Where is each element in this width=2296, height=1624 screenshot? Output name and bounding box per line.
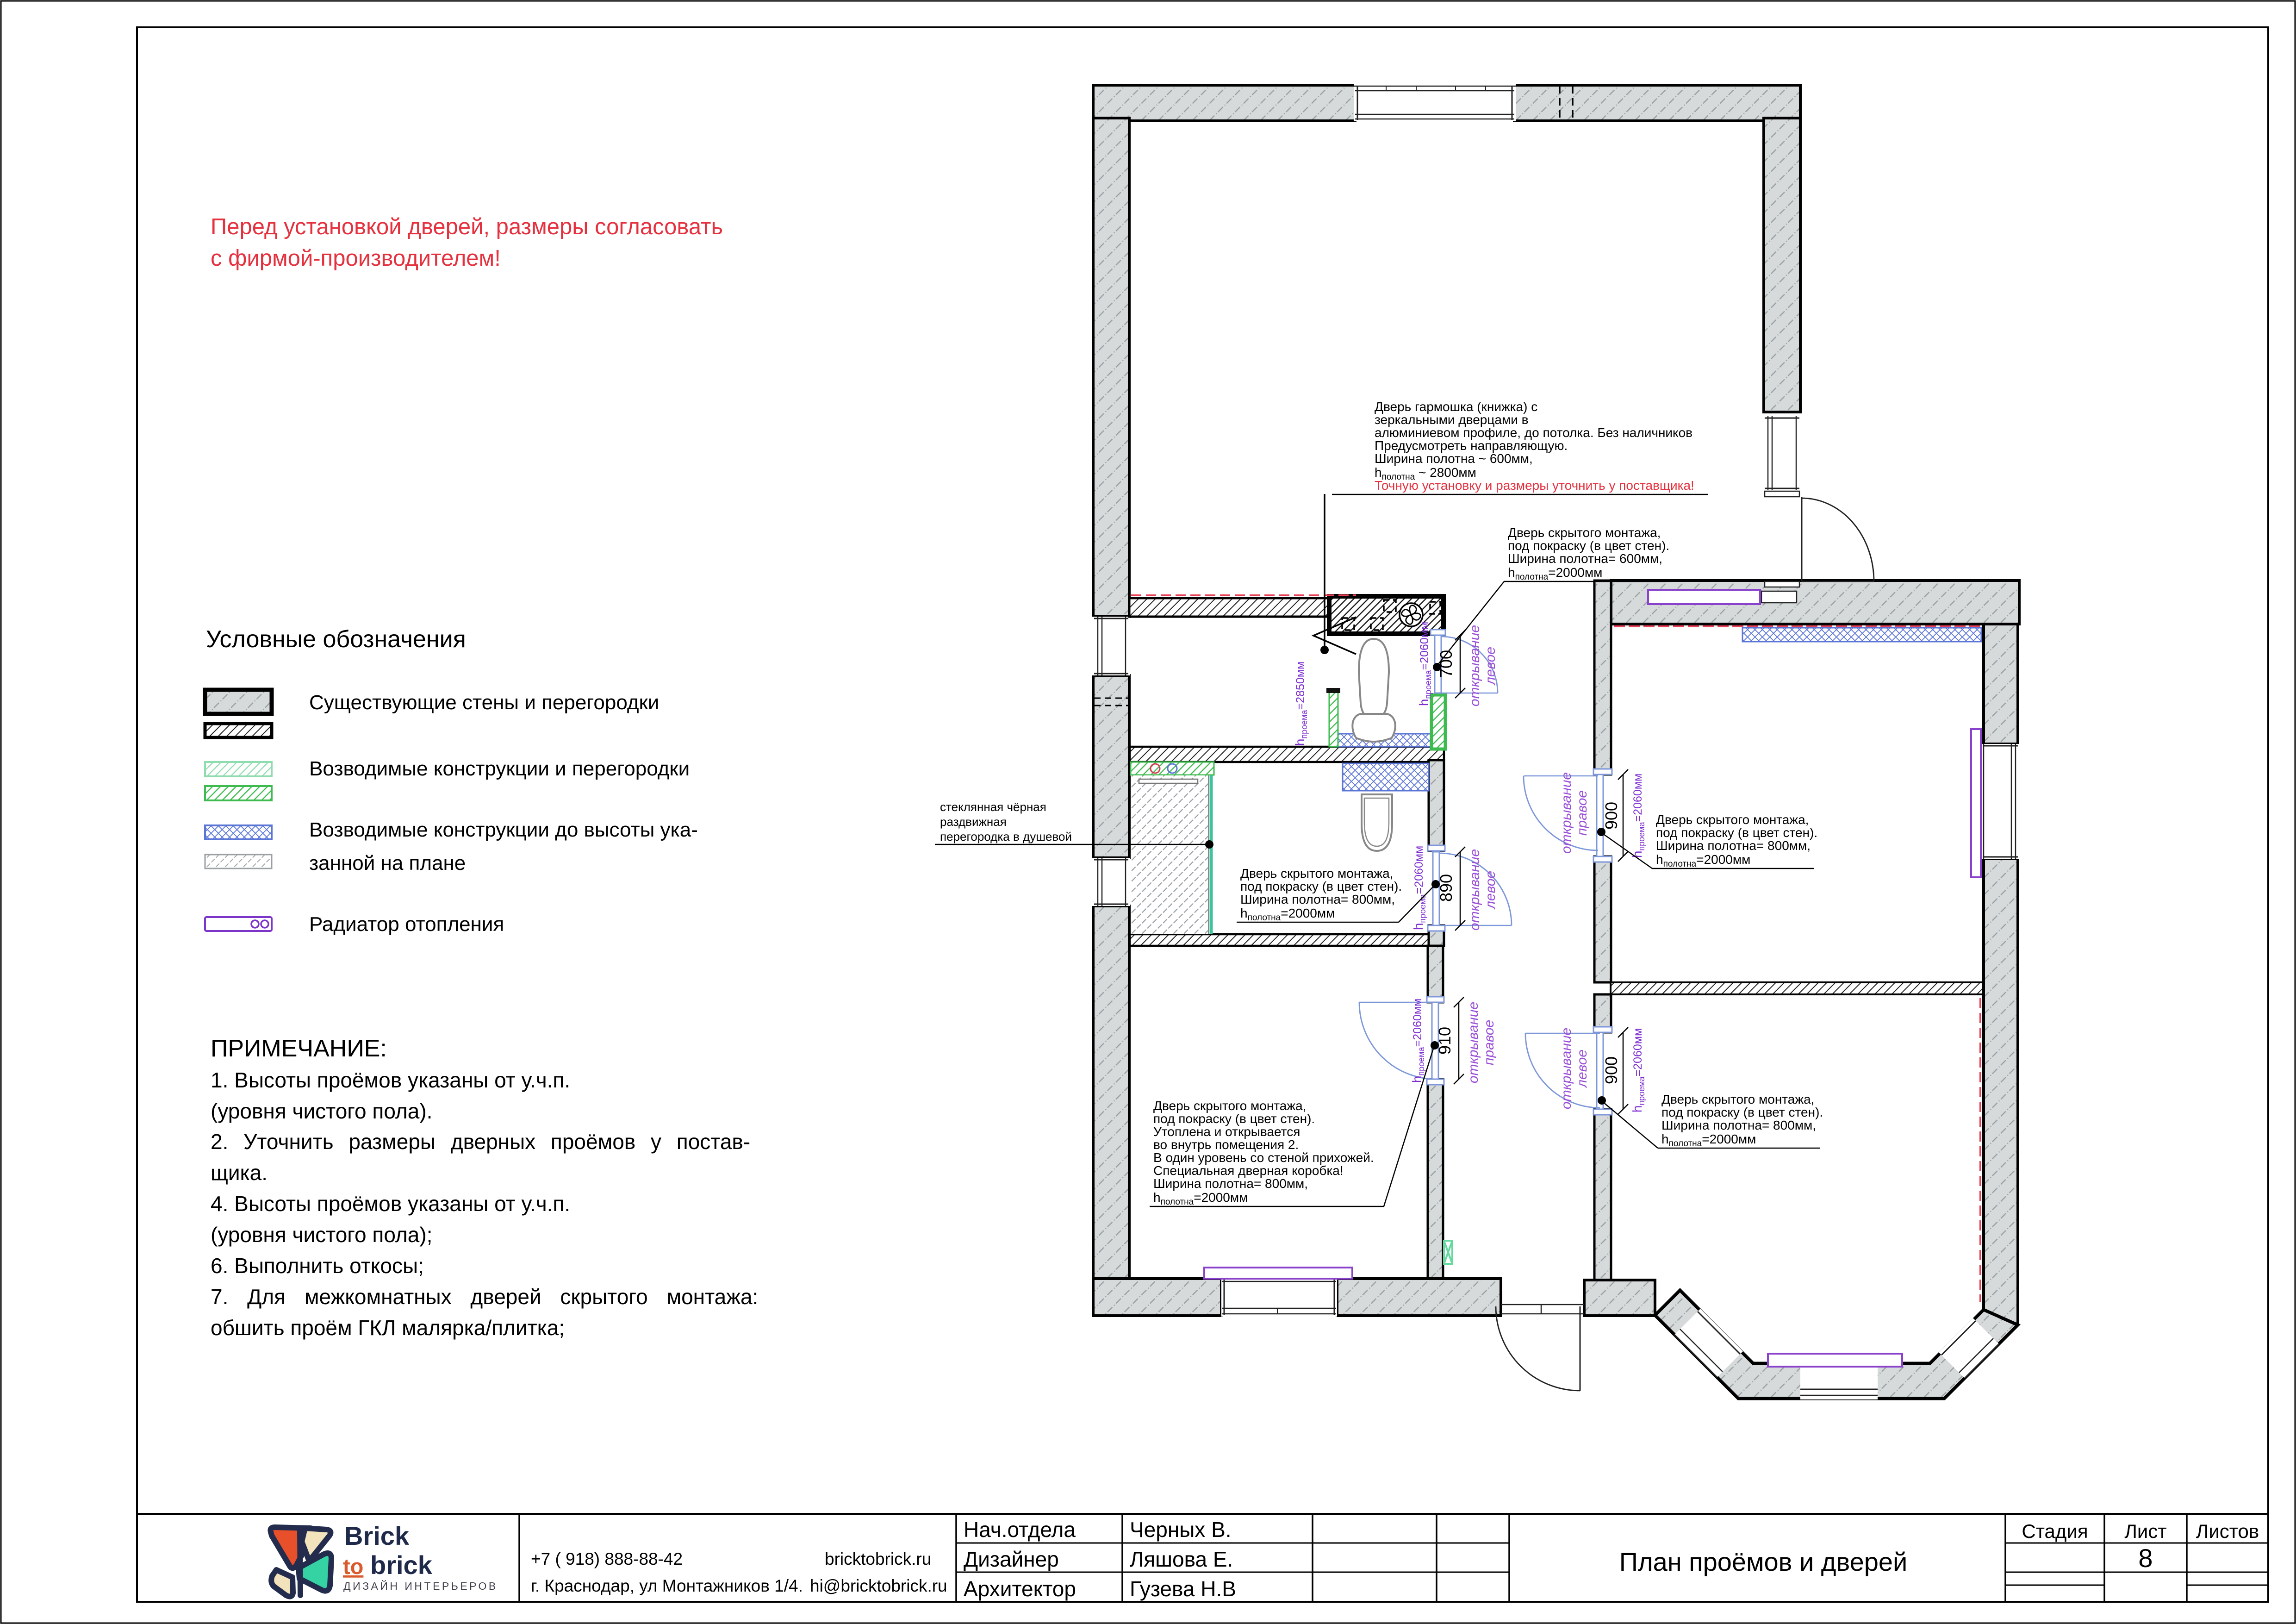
svg-text:во внутрь помещения 2.: во внутрь помещения 2. [1153, 1137, 1299, 1152]
svg-text:Ляшова Е.: Ляшова Е. [1130, 1547, 1233, 1571]
svg-text:под покраску (в цвет стен).: под покраску (в цвет стен). [1656, 825, 1817, 840]
svg-text:открывание: открывание [1559, 1028, 1574, 1109]
svg-text:900: 900 [1602, 1056, 1621, 1084]
svg-text:правое: правое [1481, 1020, 1497, 1065]
svg-text:открывание: открывание [1467, 625, 1482, 706]
svg-text:Ширина полотна= 800мм,: Ширина полотна= 800мм, [1661, 1118, 1816, 1132]
svg-text:Дверь скрытого монтажа,: Дверь скрытого монтажа, [1240, 866, 1393, 881]
svg-text:Ширина полотна= 800мм,: Ширина полотна= 800мм, [1656, 838, 1811, 853]
svg-text:раздвижная: раздвижная [940, 815, 1007, 829]
svg-text:открывание: открывание [1466, 1002, 1481, 1083]
svg-text:Специальная дверная коробка!: Специальная дверная коробка! [1153, 1163, 1344, 1178]
svg-text:bricktobrick.ru: bricktobrick.ru [825, 1549, 931, 1568]
svg-text:открывание: открывание [1559, 772, 1574, 854]
svg-text:hi@bricktobrick.ru: hi@bricktobrick.ru [810, 1576, 947, 1595]
svg-text:Гузева Н.В: Гузева Н.В [1130, 1577, 1236, 1601]
svg-text:Нач.отдела: Нач.отдела [964, 1518, 1076, 1542]
svg-text:План проёмов и дверей: План проёмов и дверей [1619, 1547, 1908, 1576]
svg-text:Дверь гармошка (книжка) с: Дверь гармошка (книжка) с [1375, 400, 1537, 414]
svg-text:Ширина полотна= 800мм,: Ширина полотна= 800мм, [1240, 892, 1395, 906]
svg-text:левое: левое [1483, 647, 1498, 686]
svg-text:Архитектор: Архитектор [964, 1577, 1076, 1601]
svg-text:Дизайнер: Дизайнер [964, 1547, 1059, 1571]
svg-text:7. Для межкомнатных дверей скр: 7. Для межкомнатных дверей скрытого монт… [211, 1285, 758, 1309]
svg-text:ПРИМЕЧАНИЕ:: ПРИМЕЧАНИЕ: [211, 1035, 387, 1062]
svg-text:brick: brick [370, 1550, 433, 1580]
svg-text:под покраску (в цвет стен).: под покраску (в цвет стен). [1240, 879, 1402, 893]
svg-text:Дверь скрытого монтажа,: Дверь скрытого монтажа, [1153, 1099, 1306, 1113]
svg-text:to: to [343, 1554, 363, 1579]
svg-text:900: 900 [1602, 802, 1621, 830]
svg-text:Листов: Листов [2196, 1520, 2259, 1542]
svg-text:Стадия: Стадия [2022, 1520, 2088, 1542]
svg-text:Ширина полотна ~ 600мм,: Ширина полотна ~ 600мм, [1375, 451, 1533, 466]
svg-text:Дверь скрытого монтажа,: Дверь скрытого монтажа, [1661, 1092, 1814, 1106]
svg-text:Возводимые конструкции и перег: Возводимые конструкции и перегородки [309, 757, 690, 780]
svg-text:Ширина полотна= 600мм,: Ширина полотна= 600мм, [1508, 551, 1662, 566]
svg-text:2. Уточнить размеры дверных пр: 2. Уточнить размеры дверных проёмов у по… [211, 1130, 750, 1154]
svg-text:Существующие стены и перегород: Существующие стены и перегородки [309, 691, 659, 714]
svg-text:Лист: Лист [2124, 1520, 2166, 1542]
svg-text:Ширина полотна= 800мм,: Ширина полотна= 800мм, [1153, 1176, 1308, 1191]
svg-text:4. Высоты проёмов указаны от у: 4. Высоты проёмов указаны от у.ч.п. [211, 1192, 570, 1216]
svg-text:Перед установкой дверей, разме: Перед установкой дверей, размеры согласо… [211, 214, 723, 239]
svg-text:обшить проём ГКЛ малярка/плитк: обшить проём ГКЛ малярка/плитка; [211, 1316, 565, 1340]
svg-text:открывание: открывание [1467, 849, 1482, 931]
svg-text:стеклянная чёрная: стеклянная чёрная [940, 800, 1046, 814]
svg-text:+7 ( 918) 888-88-42: +7 ( 918) 888-88-42 [531, 1549, 683, 1568]
svg-text:Возводимые конструкции до высо: Возводимые конструкции до высоты ука- [309, 818, 698, 841]
svg-text:г. Краснодар, ул Монтажников: г. Краснодар, ул Монтажников 1/4. [531, 1576, 803, 1595]
svg-text:Точную установку и размеры уто: Точную установку и размеры уточнить у по… [1375, 478, 1694, 493]
svg-text:Утоплена и открывается: Утоплена и открывается [1153, 1124, 1300, 1139]
svg-text:под покраску (в цвет стен).: под покраску (в цвет стен). [1661, 1105, 1823, 1119]
svg-text:занной на плане: занной на плане [309, 852, 466, 874]
svg-text:910: 910 [1435, 1027, 1454, 1055]
svg-text:890: 890 [1437, 874, 1456, 902]
svg-text:правое: правое [1574, 790, 1590, 836]
svg-text:6. Выполнить откосы;: 6. Выполнить откосы; [211, 1254, 424, 1278]
svg-text:Черных В.: Черных В. [1130, 1518, 1232, 1542]
svg-text:с фирмой-производителем!: с фирмой-производителем! [211, 246, 501, 271]
svg-text:1. Высоты проёмов указаны от у: 1. Высоты проёмов указаны от у.ч.п. [211, 1068, 570, 1092]
svg-text:под покраску (в цвет стен).: под покраску (в цвет стен). [1508, 538, 1669, 553]
svg-text:(уровня чистого пола);: (уровня чистого пола); [211, 1223, 432, 1247]
svg-text:Дверь скрытого монтажа,: Дверь скрытого монтажа, [1508, 525, 1661, 540]
svg-text:В один уровень со стеной прихо: В один уровень со стеной прихожей. [1153, 1150, 1374, 1165]
svg-text:щика.: щика. [211, 1161, 268, 1185]
svg-text:(уровня чистого пола).: (уровня чистого пола). [211, 1099, 432, 1123]
svg-text:Предусмотреть направляющую.: Предусмотреть направляющую. [1375, 438, 1568, 453]
svg-text:Дверь скрытого монтажа,: Дверь скрытого монтажа, [1656, 812, 1809, 827]
svg-text:левое: левое [1483, 871, 1498, 910]
svg-text:зеркальными дверцами в: зеркальными дверцами в [1375, 412, 1529, 427]
svg-text:левое: левое [1574, 1049, 1590, 1088]
svg-text:ДИЗАЙН ИНТЕРЬЕРОВ: ДИЗАЙН ИНТЕРЬЕРОВ [343, 1580, 498, 1592]
svg-text:Brick: Brick [344, 1521, 410, 1550]
svg-text:8: 8 [2138, 1543, 2153, 1573]
svg-text:Радиатор отопления: Радиатор отопления [309, 913, 504, 936]
svg-text:алюминиевом профиле, до потолк: алюминиевом профиле, до потолка. Без нал… [1375, 425, 1692, 440]
svg-text:под покраску (в цвет стен).: под покраску (в цвет стен). [1153, 1112, 1315, 1126]
svg-text:Условные обозначения: Условные обозначения [206, 626, 466, 653]
svg-text:перегородка в душевой: перегородка в душевой [940, 830, 1072, 843]
